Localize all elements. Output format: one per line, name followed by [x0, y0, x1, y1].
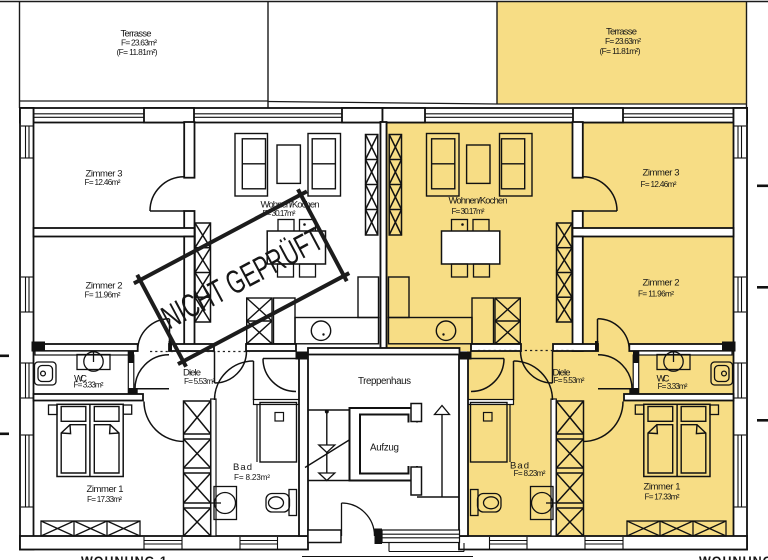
svg-text:F= 17.33m²: F= 17.33m²: [87, 495, 122, 504]
svg-text:Bad: Bad: [233, 462, 252, 473]
svg-text:F= 17.33m²: F= 17.33m²: [645, 492, 680, 501]
svg-text:(F= 11.81m²): (F= 11.81m²): [117, 47, 158, 57]
svg-text:Zimmer 2: Zimmer 2: [643, 278, 680, 289]
svg-text:F= 8.23m²: F= 8.23m²: [514, 469, 546, 478]
svg-text:F= 12.46m²: F= 12.46m²: [85, 178, 121, 187]
svg-text:WOHNUNG 2: WOHNUNG 2: [699, 555, 768, 560]
svg-text:F= 30.17m²: F= 30.17m²: [452, 207, 485, 216]
svg-text:F= 3.33m²: F= 3.33m²: [74, 380, 104, 389]
svg-text:F= 12.46m²: F= 12.46m²: [641, 180, 677, 189]
svg-text:F= 11.96m²: F= 11.96m²: [638, 289, 674, 298]
svg-text:F= 5.53m²: F= 5.53m²: [184, 377, 215, 386]
svg-text:F= 11.96m²: F= 11.96m²: [85, 291, 121, 300]
svg-text:Zimmer 1: Zimmer 1: [644, 481, 681, 492]
svg-text:WOHNUNG 1: WOHNUNG 1: [81, 555, 168, 560]
svg-text:Zimmer 3: Zimmer 3: [643, 168, 680, 179]
svg-text:Treppenhaus: Treppenhaus: [358, 376, 411, 387]
svg-text:Aufzug: Aufzug: [370, 442, 399, 453]
svg-text:F= 5.53m²: F= 5.53m²: [554, 376, 585, 385]
svg-text:F= 23.63m²: F= 23.63m²: [605, 36, 641, 46]
svg-text:Wohnen/Kochen: Wohnen/Kochen: [449, 195, 508, 206]
svg-text:Zimmer 1: Zimmer 1: [87, 484, 124, 495]
svg-text:F= 3.33m²: F= 3.33m²: [658, 382, 688, 391]
svg-text:F= 23.63m²: F= 23.63m²: [121, 37, 157, 47]
svg-text:(F= 11.81m²): (F= 11.81m²): [600, 46, 641, 56]
svg-text:F= 8.23m²: F= 8.23m²: [234, 473, 270, 482]
